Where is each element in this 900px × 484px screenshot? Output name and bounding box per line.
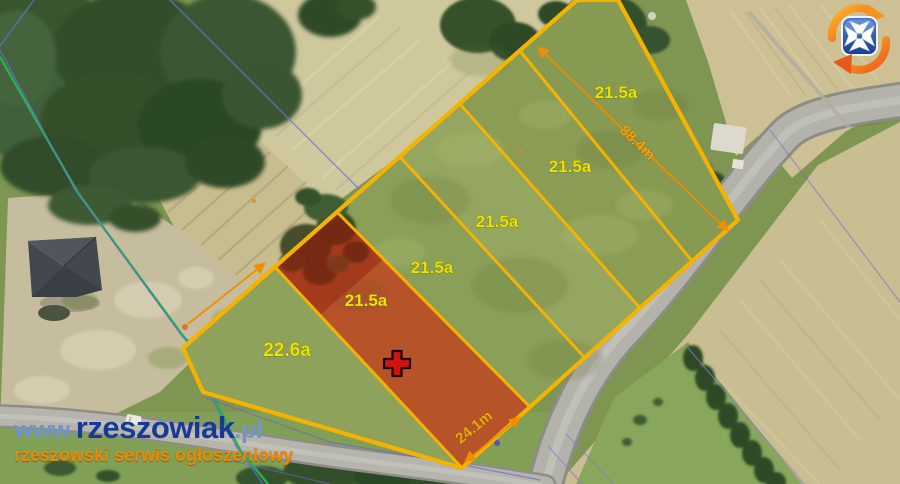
- watermark-brand: rzeszowiak: [76, 410, 235, 445]
- watermark-tagline: rzeszowski serwis ogłoszeniowy: [14, 446, 293, 465]
- aerial-parcel-map: 21.5a 21.5a 21.5a 21.5a 21.5a 22.6a 88.4…: [0, 0, 900, 484]
- area-label-plot-6: 22.6a: [263, 340, 311, 361]
- rzeszowiak-crest-logo: [822, 2, 896, 76]
- area-label-plot-1: 21.5a: [595, 83, 638, 102]
- logo-shield: [842, 17, 877, 55]
- area-label-plot-2: 21.5a: [549, 157, 592, 176]
- watermark-tld: .pl: [234, 417, 262, 444]
- watermark: www.rzeszowiak.pl rzeszowski serwis ogło…: [14, 412, 293, 464]
- area-label-plot-4: 21.5a: [411, 258, 454, 277]
- watermark-site-url: www.rzeszowiak.pl: [14, 412, 293, 445]
- watermark-prefix: www.: [14, 417, 76, 444]
- survey-point-orange: [182, 324, 188, 330]
- area-label-plot-3: 21.5a: [476, 212, 519, 231]
- area-label-plot-5: 21.5a: [345, 291, 388, 310]
